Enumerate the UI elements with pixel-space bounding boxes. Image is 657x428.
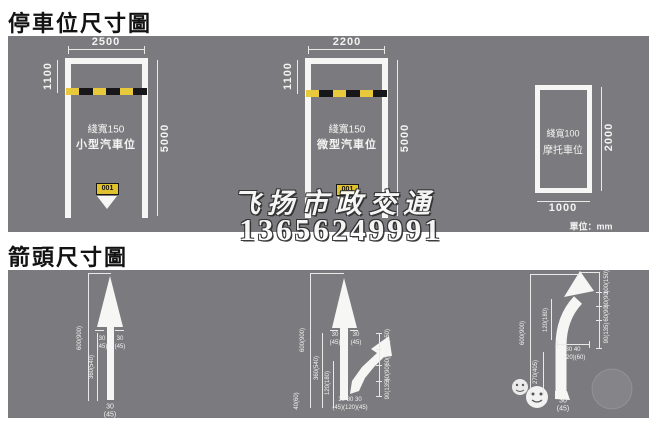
stall-width-label: 2200 — [333, 36, 361, 48]
dim-line — [551, 299, 552, 340]
dim-line — [57, 60, 58, 93]
dim-line — [157, 60, 158, 216]
dim-tick — [376, 365, 382, 366]
dim-head-left: 30 — [332, 332, 339, 338]
dim-tick — [376, 333, 382, 334]
dim-tick — [557, 341, 558, 348]
dim-tick — [376, 396, 382, 397]
dim-total-length: 600(900) — [520, 321, 526, 345]
dim-line — [88, 273, 89, 401]
stall-line — [305, 58, 388, 64]
dim-bottom-widths-alt: (45)(120)(45) — [332, 405, 367, 411]
dim-shaft-width-alt: (45) — [557, 406, 569, 413]
line-width-note: 綫寬150 — [329, 121, 366, 136]
stall-depth-label: 2000 — [603, 123, 615, 151]
wheel-stop-bar — [306, 90, 387, 97]
dim-shaft-length: 360(540) — [314, 356, 320, 380]
dim-branch-seg: 90(135) — [604, 323, 610, 344]
dim-line — [330, 330, 338, 331]
dim-tick — [596, 306, 602, 307]
dim-tick — [589, 341, 590, 348]
dim-bottom-widths: 30 80 30 — [338, 397, 361, 403]
line-width-note: 綫寬150 — [88, 121, 125, 136]
dim-line — [543, 352, 544, 395]
stall-width-label: 2500 — [92, 36, 120, 48]
dim-shaft-width-alt: (45) — [104, 412, 116, 419]
dim-mid-widths: 80 40 — [565, 347, 580, 353]
dim-line — [310, 273, 311, 408]
dim-line — [557, 344, 590, 345]
dim-tick — [376, 349, 382, 350]
stall-name: 小型汽車位 — [76, 136, 136, 152]
dim-head-right: 30 — [353, 332, 360, 338]
dim-tick — [144, 46, 145, 54]
dim-tick — [596, 320, 602, 321]
stall-depth-label: 5000 — [159, 124, 171, 152]
dim-line — [350, 330, 358, 331]
dim-tick — [376, 381, 382, 382]
dim-tick — [384, 46, 385, 54]
dim-line — [95, 330, 104, 331]
wheel-stop-bar — [66, 88, 147, 95]
unit-note: 單位：mm — [569, 220, 612, 233]
stall-line — [142, 58, 148, 218]
dim-shaft-length: 360(540) — [89, 355, 95, 379]
dim-head-right-alt: (45) — [351, 340, 362, 346]
dim-shaft-width: 30 — [106, 404, 114, 411]
dim-line — [308, 49, 385, 50]
stall-entry-label: 1100 — [282, 62, 294, 90]
dim-head-right: 30 — [117, 336, 124, 342]
dim-tick — [596, 292, 602, 293]
dim-line — [333, 361, 334, 408]
road-marking-spec-sheet: 停車位尺寸圖 箭頭尺寸圖 2500 1100 5000 綫寬150 小型汽車位 … — [0, 0, 657, 428]
dim-head-left-alt: (45) — [97, 344, 108, 350]
dim-line — [322, 333, 323, 408]
dim-line — [601, 87, 602, 191]
stall-entry-arrow-icon — [97, 196, 117, 209]
arrow-section-title: 箭頭尺寸圖 — [8, 240, 128, 272]
stall-depth-label: 5000 — [399, 124, 411, 152]
dim-head-right-alt: (45) — [115, 344, 126, 350]
stall-number-plate: 001 — [96, 183, 119, 195]
line-width-note: 綫寬100 — [546, 127, 579, 140]
dim-tick — [308, 46, 309, 54]
parking-section-title: 停車位尺寸圖 — [8, 6, 152, 38]
dim-branch-seg: 90(135) — [385, 379, 391, 400]
dim-line — [68, 49, 145, 50]
dim-head-left-alt: (45) — [330, 340, 341, 346]
dim-total-length: 600(900) — [77, 326, 83, 350]
stall-width-label: 1000 — [549, 202, 577, 214]
watermark-phone-text: 13656249991 — [239, 212, 443, 248]
dim-line — [530, 274, 531, 395]
stall-name: 微型汽車位 — [317, 136, 377, 152]
stall-line — [65, 58, 71, 218]
dim-line — [297, 60, 298, 94]
dim-shaft-width: 30 — [559, 398, 567, 405]
dim-line — [88, 273, 111, 274]
stall-name: 摩托車位 — [543, 142, 583, 157]
dim-line — [581, 272, 599, 273]
dim-tail-length: 40(60) — [294, 392, 300, 409]
dim-mid-length: 120(180) — [325, 371, 331, 395]
dim-mid-widths-alt: (120)(60) — [561, 355, 586, 361]
dim-lower-length: 270(405) — [533, 360, 539, 384]
dim-branch-seg: 60(90) — [385, 348, 391, 365]
dim-head-left: 30 — [99, 336, 106, 342]
stall-line — [65, 58, 148, 64]
dim-line — [310, 273, 344, 274]
dim-line — [599, 272, 600, 348]
dim-upper-length: 120(180) — [543, 308, 549, 332]
stall-entry-label: 1100 — [42, 62, 54, 90]
dim-tick — [596, 348, 602, 349]
dim-line — [530, 274, 580, 275]
dim-tick — [68, 46, 69, 54]
dim-branch-seg: 60(90) — [604, 304, 610, 321]
dim-line — [115, 330, 124, 331]
dim-total-length: 600(900) — [300, 328, 306, 352]
